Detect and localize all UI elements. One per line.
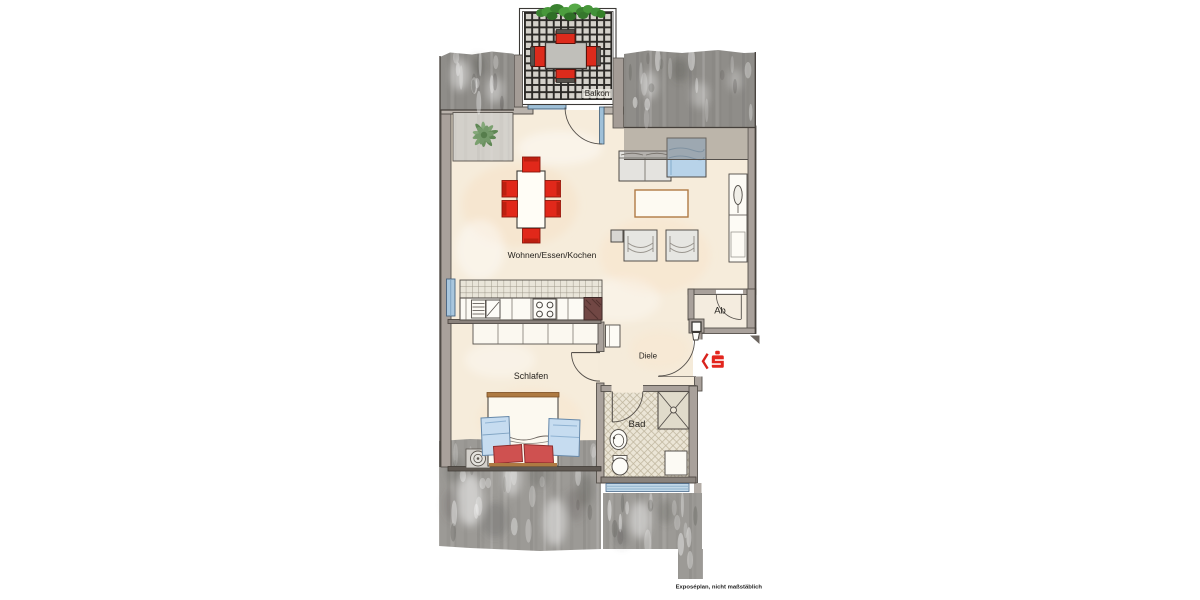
svg-text:Bad: Bad	[629, 419, 646, 430]
svg-text:Wohnen/Essen/Kochen: Wohnen/Essen/Kochen	[508, 250, 597, 260]
svg-text:Schlafen: Schlafen	[514, 371, 548, 381]
svg-text:Diele: Diele	[639, 352, 658, 361]
svg-text:Exposéplan, nicht maßstäblich: Exposéplan, nicht maßstäblich	[676, 585, 763, 591]
svg-text:Ab: Ab	[714, 306, 726, 317]
svg-text:Balkon: Balkon	[585, 89, 609, 98]
